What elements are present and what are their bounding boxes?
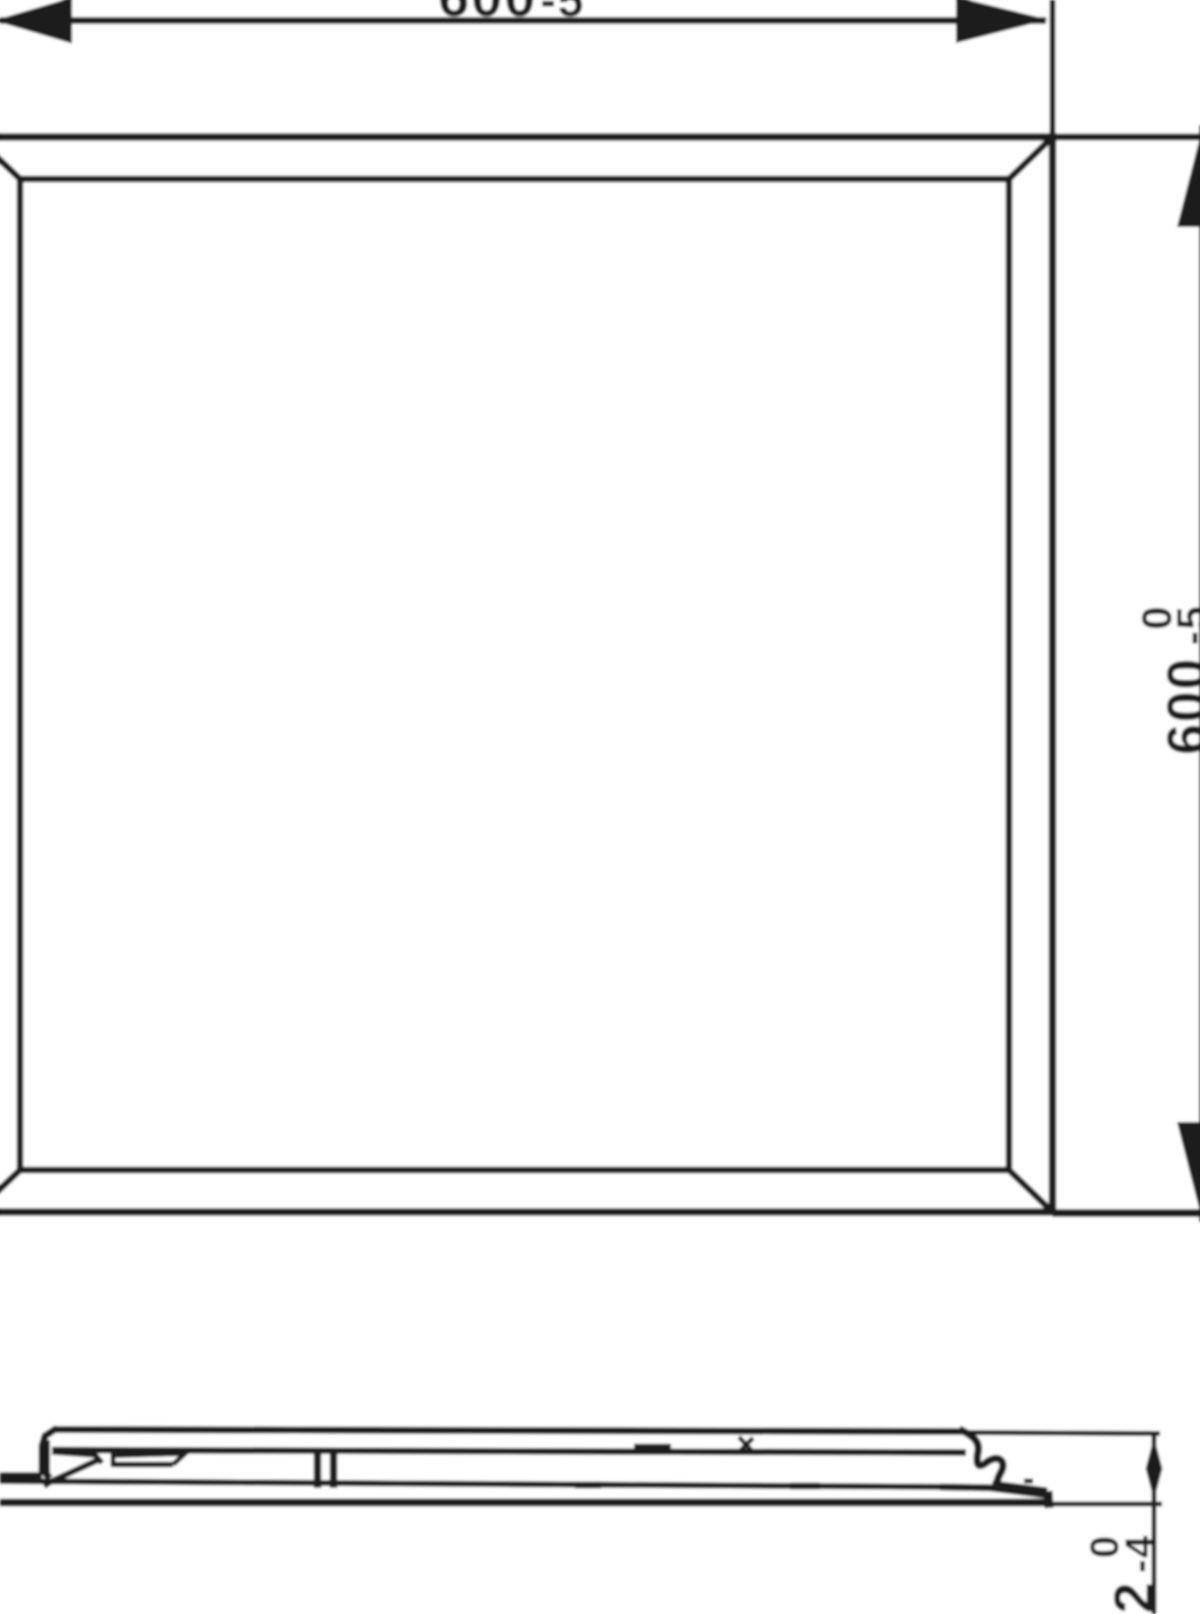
svg-text:600-5: 600-5 [438,0,585,28]
